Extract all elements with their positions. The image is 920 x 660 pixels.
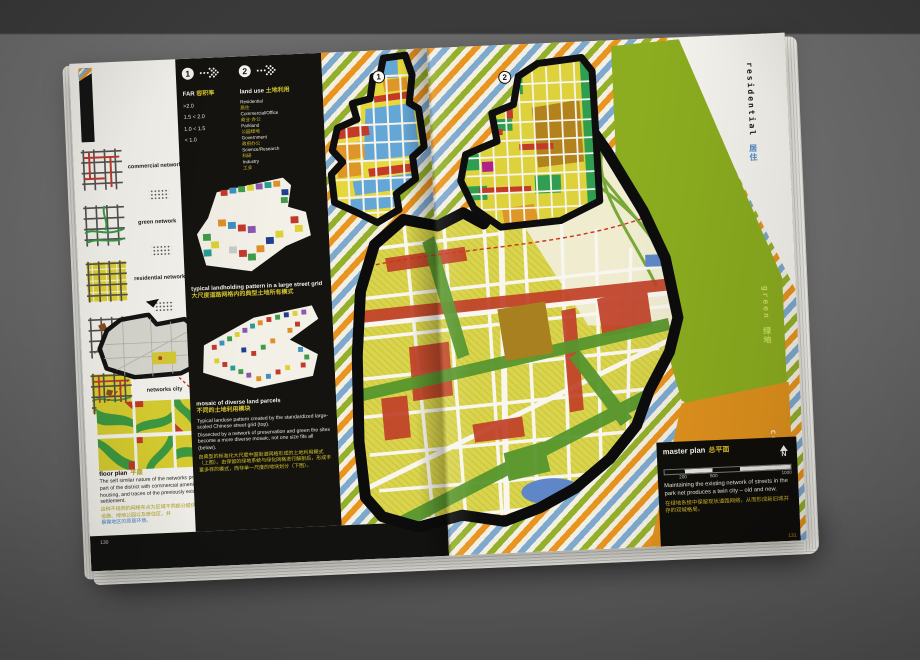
legends: 1 FAR 容积率 >2.0 1.5 < 2.0 1.0 < 1.5 < 1.0 — [181, 59, 320, 173]
legend-number-1: 1 — [182, 67, 195, 80]
landuse-map — [431, 53, 611, 236]
dotted-arrow-icon — [255, 64, 276, 77]
book-spread: commercial network green network — [69, 33, 806, 572]
far-legend: 1 FAR 容积率 >2.0 1.5 < 2.0 1.0 < 1.5 < 1.0 — [181, 63, 238, 174]
landholding-figure — [186, 172, 324, 280]
far-value: < 1.0 — [185, 134, 237, 148]
legend-panel: 1 FAR 容积率 >2.0 1.5 < 2.0 1.0 < 1.5 < 1.0 — [175, 53, 341, 532]
scale-label: 500 — [710, 472, 718, 477]
landholding-caption: typical landholding pattern in a large s… — [191, 281, 326, 301]
photo-background: commercial network green network — [0, 0, 920, 660]
list-item: commercial network — [79, 143, 189, 193]
legend-number-2: 2 — [238, 65, 251, 78]
north-arrow-icon: N — [776, 442, 791, 461]
page-number-left: 130 — [100, 540, 109, 546]
network-label: green network — [129, 218, 185, 227]
commercial-network-icon — [79, 146, 125, 192]
green-network-icon — [81, 202, 127, 248]
landuse-title: land use 土地利用 — [239, 83, 315, 95]
scale-label: 1000 — [781, 469, 791, 474]
masterplan-body-zh: 在绿地系统中保留现状道路网络，从而形成新旧城并存的双城格局。 — [665, 495, 794, 516]
spread: commercial network green network — [69, 33, 806, 572]
masterplan-info-box: master plan总平面 N 200 500 1000 — [656, 437, 800, 547]
residential-network-icon — [84, 258, 130, 304]
list-item: residential network — [84, 255, 194, 305]
scale-label: 200 — [679, 474, 687, 479]
network-label: residential network — [132, 274, 188, 283]
masterplan-title: master plan总平面 — [663, 444, 730, 457]
landuse-legend: 2 land use 土地利用 Residential居住 Commercial… — [238, 59, 319, 171]
mosaic-text-block: mosaic of diverse land parcels 不同的土地利用模块… — [196, 396, 333, 475]
network-label: commercial network — [127, 162, 183, 171]
page-number-right: 131 — [788, 533, 797, 539]
mosaic-figure — [192, 299, 330, 395]
list-item: green network — [81, 199, 191, 249]
far-title: FAR 容积率 — [182, 87, 234, 98]
mosaic-body-zh: 由典型的标准化大尺度中国街道网格形成的土地利用模式（上图）。由保留的绿地系统与绿… — [198, 448, 333, 474]
dotted-arrow-icon — [199, 66, 220, 79]
